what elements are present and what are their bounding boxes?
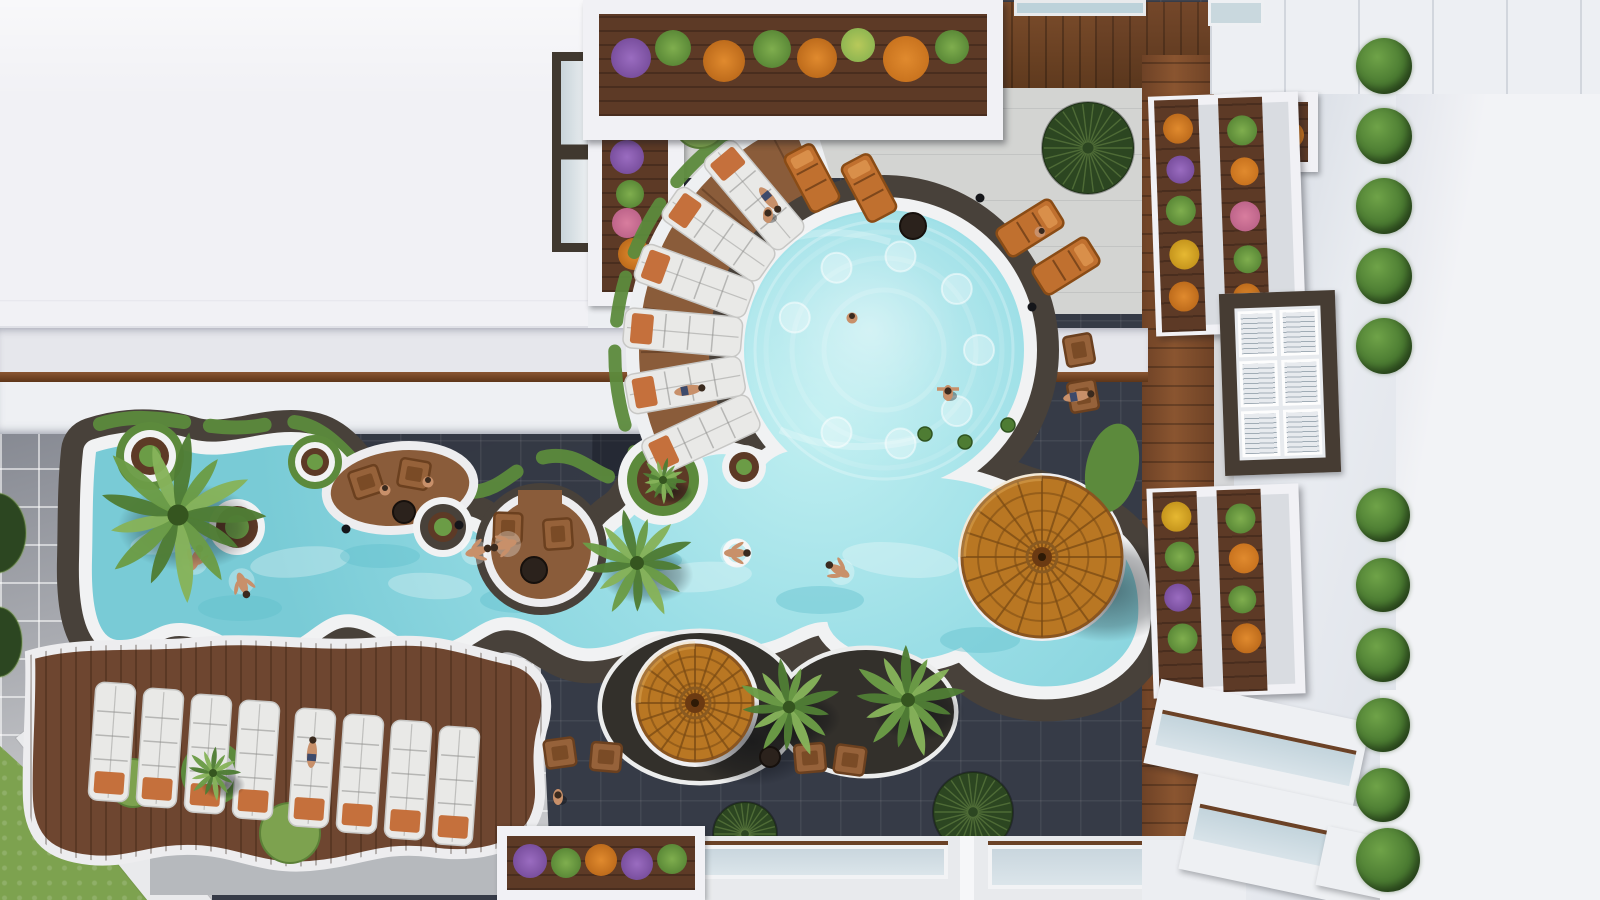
window-pane — [1284, 362, 1317, 403]
round-table — [521, 557, 547, 583]
sun-lounger-white — [336, 714, 384, 835]
orange-flowers — [797, 38, 837, 78]
flower-balcony — [583, 0, 1003, 140]
deck-light — [455, 521, 464, 530]
hedge-bush — [1356, 828, 1420, 892]
window-pane — [1286, 412, 1319, 453]
deck-light — [976, 194, 985, 203]
sun-lounger-white — [432, 726, 480, 847]
round-table — [393, 501, 415, 523]
hedge-bush — [1356, 38, 1412, 94]
hedge-bush — [1356, 488, 1410, 542]
hedge-bush — [1356, 318, 1412, 374]
purple-flowers — [513, 844, 547, 878]
wood-armchair — [1063, 333, 1096, 367]
flower-planter-box — [497, 826, 705, 900]
aerial-resort-courtyard-photo — [0, 0, 1600, 900]
round-table — [760, 747, 780, 767]
person — [553, 789, 567, 805]
orange-flowers — [883, 36, 929, 82]
wood-armchair — [590, 742, 622, 773]
plant — [753, 30, 791, 68]
plant — [657, 844, 687, 874]
framed-window — [1219, 290, 1341, 476]
sun-lounger-white — [232, 700, 280, 821]
window-pane — [1244, 413, 1277, 454]
hedge-bush — [1356, 558, 1410, 612]
sun-lounger-white — [136, 688, 184, 809]
wood-armchair — [543, 737, 577, 769]
plant — [551, 848, 581, 878]
thatched-parasol — [962, 477, 1122, 637]
wood-armchair — [833, 744, 867, 776]
hedge-bush — [1356, 768, 1410, 822]
thatched-parasol — [637, 645, 753, 761]
hedge-bush — [1356, 248, 1412, 304]
person — [423, 477, 434, 488]
orange-flowers — [703, 40, 745, 82]
sun-lounger-orange — [994, 197, 1065, 258]
planter-box — [599, 14, 987, 116]
circular-planter — [288, 435, 342, 489]
deck-light — [342, 525, 351, 534]
deck-light — [1028, 303, 1037, 312]
plant — [655, 30, 691, 66]
hedge-bush — [1356, 178, 1412, 234]
sun-lounger-orange — [1030, 235, 1101, 296]
hedge-bush — [1356, 698, 1410, 752]
purple-flowers — [611, 38, 651, 78]
person — [380, 485, 391, 496]
sun-lounger-white — [288, 708, 336, 829]
window-pane — [1241, 313, 1274, 354]
wood-armchair — [543, 518, 573, 550]
plant — [935, 30, 969, 64]
circular-planter — [116, 422, 184, 490]
divider-wall — [960, 836, 974, 900]
plant — [841, 28, 875, 62]
window-pane — [1242, 363, 1275, 404]
sun-lounger-white — [88, 682, 136, 803]
round-table — [900, 213, 926, 239]
hedge-bush — [1356, 108, 1412, 164]
flower-balcony — [1146, 483, 1305, 698]
window-pane — [1283, 312, 1316, 353]
purple-flowers — [621, 848, 653, 880]
person — [847, 313, 858, 324]
hedge-bush — [1356, 628, 1410, 682]
orange-flowers — [585, 844, 617, 876]
sun-lounger-white — [384, 720, 432, 841]
fan-shrub — [1042, 102, 1134, 194]
circular-planter — [722, 445, 766, 489]
person — [720, 540, 751, 566]
hedge-row — [1344, 20, 1408, 880]
